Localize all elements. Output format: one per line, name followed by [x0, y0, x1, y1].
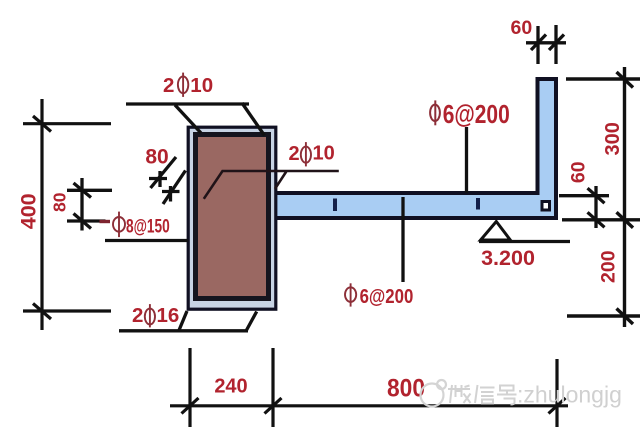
svg-text::zhulongjg: :zhulongjg	[517, 382, 622, 408]
svg-text:200: 200	[598, 250, 620, 283]
svg-text:240: 240	[214, 375, 247, 397]
svg-text:3.200: 3.200	[481, 246, 535, 270]
svg-text:16: 16	[157, 304, 180, 327]
svg-text:80: 80	[145, 145, 168, 168]
svg-text:400: 400	[16, 193, 40, 229]
svg-text:2: 2	[289, 143, 300, 165]
svg-text:10: 10	[313, 142, 335, 164]
svg-text:2: 2	[163, 74, 174, 97]
svg-text:60: 60	[568, 161, 590, 183]
svg-text:80: 80	[50, 192, 70, 212]
svg-text:6@200: 6@200	[443, 101, 510, 130]
svg-text:300: 300	[602, 122, 624, 155]
svg-text:6@200: 6@200	[360, 285, 414, 308]
svg-text:8@150: 8@150	[126, 215, 170, 237]
svg-text:10: 10	[190, 74, 213, 97]
svg-text:60: 60	[511, 17, 533, 39]
svg-text:800: 800	[387, 375, 425, 403]
svg-text:2: 2	[132, 304, 143, 327]
